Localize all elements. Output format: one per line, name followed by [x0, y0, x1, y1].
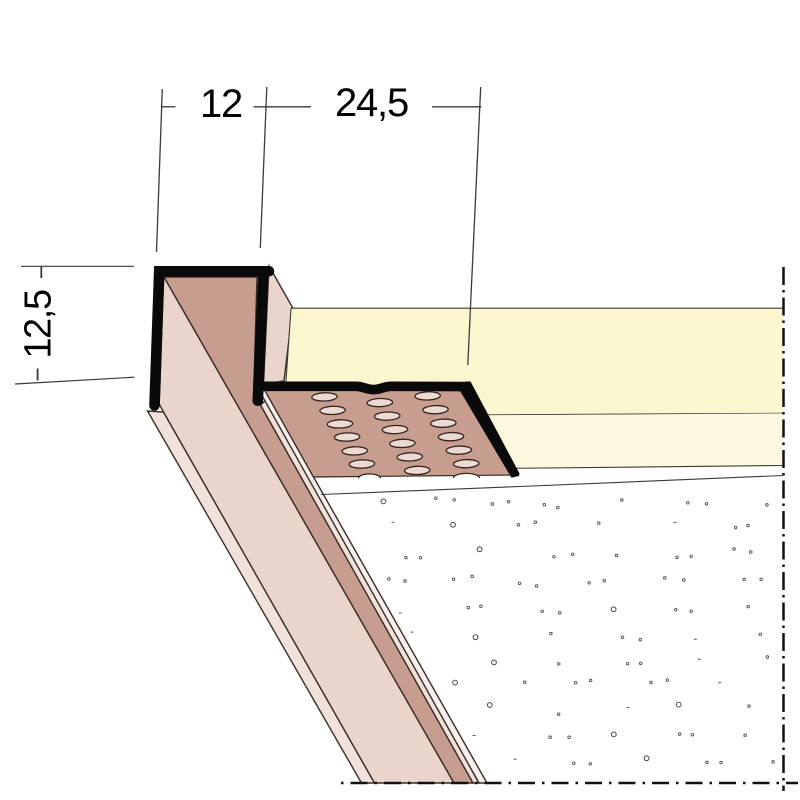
svg-text:24,5: 24,5	[335, 81, 408, 125]
svg-text:12,5: 12,5	[18, 290, 60, 359]
svg-text:12: 12	[200, 82, 242, 126]
